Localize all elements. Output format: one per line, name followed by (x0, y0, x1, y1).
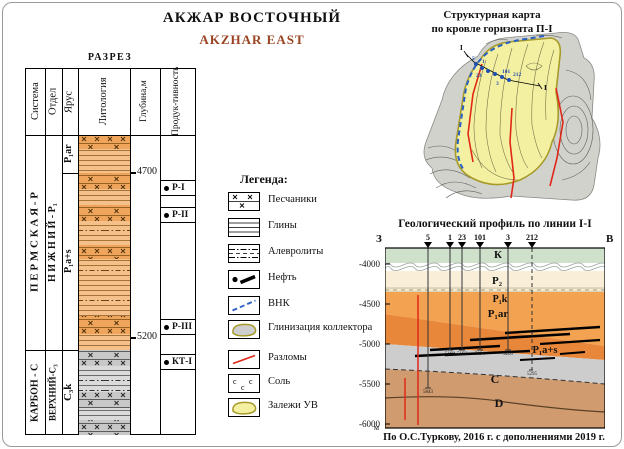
profile-depth--5500: -5500 (348, 379, 380, 389)
svg-text:I: I (460, 44, 463, 52)
prod-cell-kt1: КТ-I (161, 354, 195, 370)
salt-pattern-icon: c c c (228, 374, 260, 393)
legend-item-oil: Нефть (228, 270, 297, 289)
legend-item-salt: c c c Соль (228, 374, 290, 393)
svg-text:5: 5 (472, 56, 475, 62)
legend-item-clay: Глины (228, 218, 297, 237)
svg-text:c: c (241, 383, 245, 392)
well-name-3: 3 (500, 233, 516, 242)
svg-text:23: 23 (476, 73, 482, 79)
sandstone-pattern-icon (228, 192, 260, 211)
depth-tick-4700 (130, 172, 136, 174)
system-carbon: КАРБОН - С (28, 352, 43, 433)
page-title: АКЖАР ВОСТОЧНЫЙ (120, 10, 384, 27)
stage-c3k: C₃k (62, 352, 76, 433)
layer-label-p2: P₂ (482, 275, 512, 287)
fault-icon (228, 350, 260, 369)
table-vline (160, 68, 161, 435)
well-name-23: 23 (454, 233, 470, 242)
prod-cell-p2: Р-II (161, 207, 195, 223)
series-carbon: ВЕРХНИЙ-С₃ (46, 352, 60, 433)
stage-p1as: P₁a+s (62, 175, 76, 348)
clay-pattern-icon (228, 218, 260, 237)
page-subtitle: AKZHAR EAST (120, 32, 384, 48)
siltstone-pattern-icon (228, 244, 260, 263)
layer-label-p1as: P₁a+s (522, 345, 568, 356)
well-name-5: 5 (420, 233, 436, 242)
svg-text:c: c (233, 377, 237, 386)
header-system: Система (28, 70, 43, 133)
svg-text:c: c (249, 377, 253, 386)
lithology-strip (78, 135, 130, 435)
profile-east-label: В (606, 233, 613, 245)
well-td-101: 5196 (468, 352, 492, 357)
profile-depth--5000: -5000 (348, 339, 380, 349)
layer-label-c: C (480, 372, 510, 387)
system-permian: П Е Р М С К А Я - Р (28, 137, 43, 348)
well-head-markers (424, 242, 536, 248)
legend-item-vnk: ВНК (228, 296, 290, 315)
header-lithology: Литология (96, 70, 111, 133)
layer-label-p1k: P₁k (485, 294, 515, 305)
well-td-3: 5200 (496, 352, 520, 357)
vnk-contact-icon (228, 296, 260, 315)
legend-item-sandstone: Песчаники (228, 192, 317, 211)
legend-title: Легенда: (240, 172, 288, 187)
depth-label-5200: 5200 (137, 331, 157, 342)
table-vline (130, 68, 131, 435)
stage-line (62, 173, 78, 174)
depth-tick-5200 (130, 337, 136, 339)
legend-item-hc-deposits: Залежи УВ (228, 398, 318, 417)
header-productivity: Продук- тивность (164, 70, 190, 133)
legend-item-clayization: Глинизация коллектора (228, 320, 372, 339)
oil-icon (228, 270, 260, 289)
perm-carbon-line (25, 350, 78, 351)
table-vline (78, 68, 79, 435)
svg-text:I: I (544, 84, 547, 92)
well-name-212: 212 (524, 233, 540, 242)
svg-text:1: 1 (482, 59, 485, 65)
profile-depth--4000: -4000 (348, 259, 380, 269)
profile-west-label: З (376, 233, 382, 245)
oil-dot-icon (164, 213, 169, 218)
profile-depth-unit: м (374, 423, 379, 432)
well-td-5: 5843 (416, 390, 440, 395)
map-title-line1: Структурная карта (392, 9, 592, 21)
depth-label-4700: 4700 (137, 166, 157, 177)
well-td-212: 5295 (520, 372, 544, 377)
profile-title: Геологический профиль по линии I-I (380, 218, 610, 230)
legend-item-faults: Разломы (228, 350, 307, 369)
stage-p1ar: P₁ar (62, 136, 76, 172)
source-caption: По О.С.Туркову, 2016 г. с дополнениями 2… (372, 432, 616, 443)
column-title: РАЗРЕЗ (60, 52, 160, 63)
layer-label-k: К (483, 249, 513, 261)
svg-text:212: 212 (513, 72, 522, 78)
well-name-101: 101 (472, 233, 488, 242)
oil-dot-icon (164, 325, 169, 330)
header-stage: Ярус (62, 70, 76, 133)
layer-label-p1ar: P₁ar (480, 308, 516, 320)
structural-map: 5 1 23 3 101 212 I I (416, 30, 616, 212)
oil-dot-icon (164, 186, 169, 191)
prod-cell-p1: Р-I (161, 180, 195, 196)
hc-deposit-icon (228, 398, 260, 417)
series-permian: Н И Ж Н И Й - Р₁ (46, 137, 60, 348)
header-depth: Глубина,м (138, 70, 152, 133)
header-series: Отдел (46, 70, 60, 133)
profile-depth--4500: -4500 (348, 299, 380, 309)
svg-text:3: 3 (496, 81, 499, 87)
layer-label-d: D (484, 396, 514, 411)
oil-dot-icon (164, 360, 169, 365)
svg-text:101: 101 (502, 69, 511, 75)
figure-akzhar-east: АКЖАР ВОСТОЧНЫЙ AKZHAR EAST РАЗРЕЗ (0, 0, 624, 449)
prod-cell-p3: Р-III (161, 319, 195, 335)
legend-item-siltstone: Алевролиты (228, 244, 323, 263)
clayization-icon (228, 320, 260, 339)
